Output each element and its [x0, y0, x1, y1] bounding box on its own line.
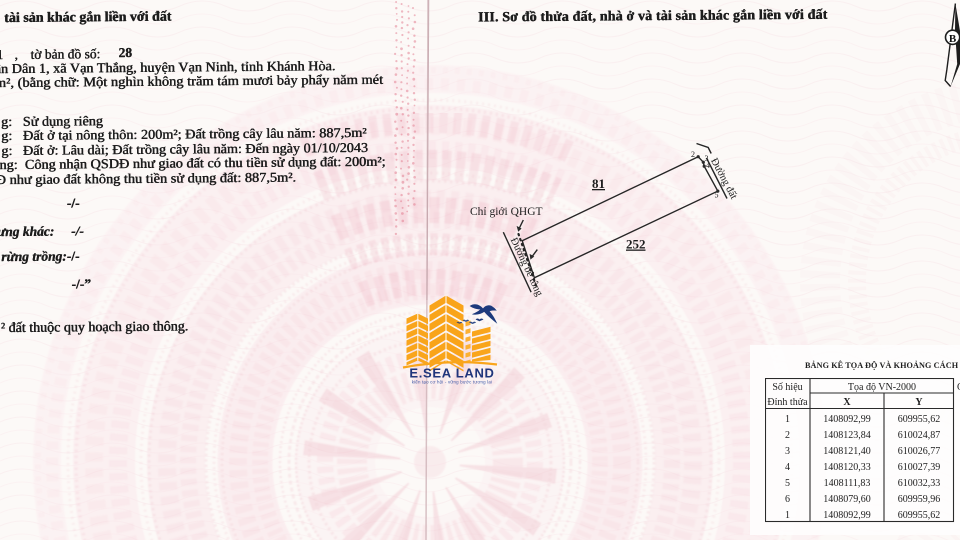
svg-text:1408111,83: 1408111,83: [824, 478, 871, 489]
svg-text:610024,87: 610024,87: [898, 430, 941, 441]
svg-text:1408079,60: 1408079,60: [823, 494, 871, 505]
svg-text:3: 3: [785, 446, 790, 457]
svg-text:Đỉnh thửa: Đỉnh thửa: [767, 397, 808, 408]
svg-text:1: 1: [785, 414, 790, 425]
svg-text:E.SEA LAND: E.SEA LAND: [409, 366, 494, 381]
svg-text:81: 81: [592, 176, 605, 191]
svg-text:609955,62: 609955,62: [898, 414, 941, 425]
svg-text:609955,62: 609955,62: [898, 510, 941, 521]
svg-text:4: 4: [785, 462, 790, 473]
svg-text:610026,77: 610026,77: [898, 446, 941, 457]
svg-text:Đường đất: Đường đất: [708, 156, 739, 201]
svg-text:2: 2: [691, 150, 695, 159]
svg-text:610027,39: 610027,39: [898, 462, 941, 473]
svg-text:5: 5: [715, 191, 719, 200]
svg-text:Tọa độ VN-2000: Tọa độ VN-2000: [848, 382, 916, 393]
svg-text:610032,33: 610032,33: [898, 478, 941, 489]
svg-text:B: B: [949, 33, 957, 45]
svg-text:2: 2: [785, 430, 790, 441]
svg-text:1408121,40: 1408121,40: [823, 446, 871, 457]
svg-text:6: 6: [785, 494, 790, 505]
svg-text:X: X: [843, 397, 851, 408]
svg-text:Đường bê tông: Đường bê tông: [508, 236, 545, 299]
svg-text:Chỉ giới QHGT: Chỉ giới QHGT: [470, 206, 543, 218]
svg-text:1408092,99: 1408092,99: [823, 414, 871, 425]
svg-text:609959,96: 609959,96: [898, 494, 941, 505]
svg-text:Số hiệu: Số hiệu: [772, 382, 802, 393]
svg-text:kiến tạo cơ hội - vững bước tư: kiến tạo cơ hội - vững bước tương lai: [412, 380, 493, 385]
svg-text:5: 5: [785, 478, 790, 489]
svg-text:1408120,33: 1408120,33: [823, 462, 871, 473]
svg-text:Y: Y: [915, 397, 923, 408]
svg-text:1: 1: [785, 510, 790, 521]
svg-text:252: 252: [626, 237, 646, 252]
svg-text:1408123,84: 1408123,84: [823, 430, 871, 441]
svg-text:1408092,99: 1408092,99: [823, 510, 871, 521]
